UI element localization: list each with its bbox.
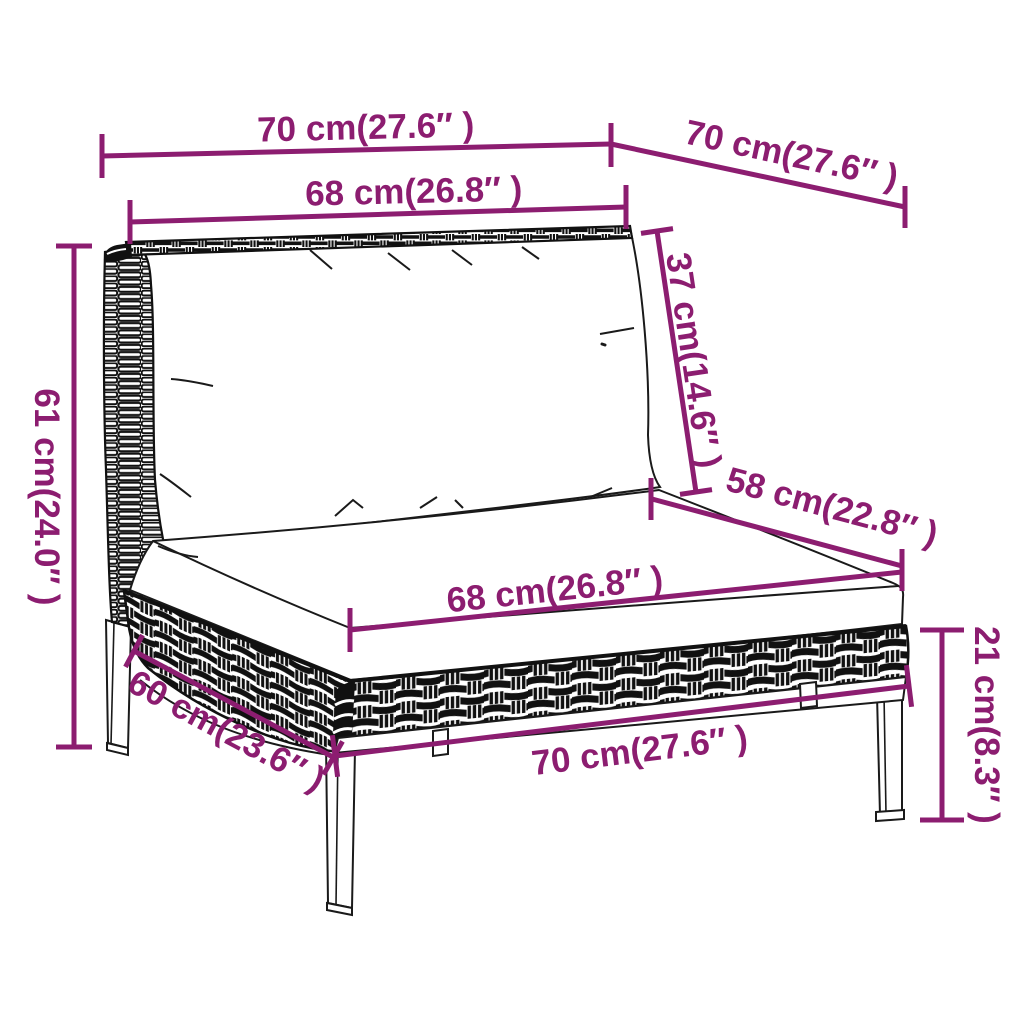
svg-text:61 cm(24.0″ ): 61 cm(24.0″ ) (27, 388, 66, 605)
svg-text:21 cm(8.3″ ): 21 cm(8.3″ ) (967, 626, 1006, 824)
svg-text:68 cm(26.8″ ): 68 cm(26.8″ ) (305, 169, 523, 213)
svg-text:70 cm(27.6″ ): 70 cm(27.6″ ) (257, 105, 475, 149)
svg-text:37 cm(14.6″ ): 37 cm(14.6″ ) (658, 250, 729, 471)
